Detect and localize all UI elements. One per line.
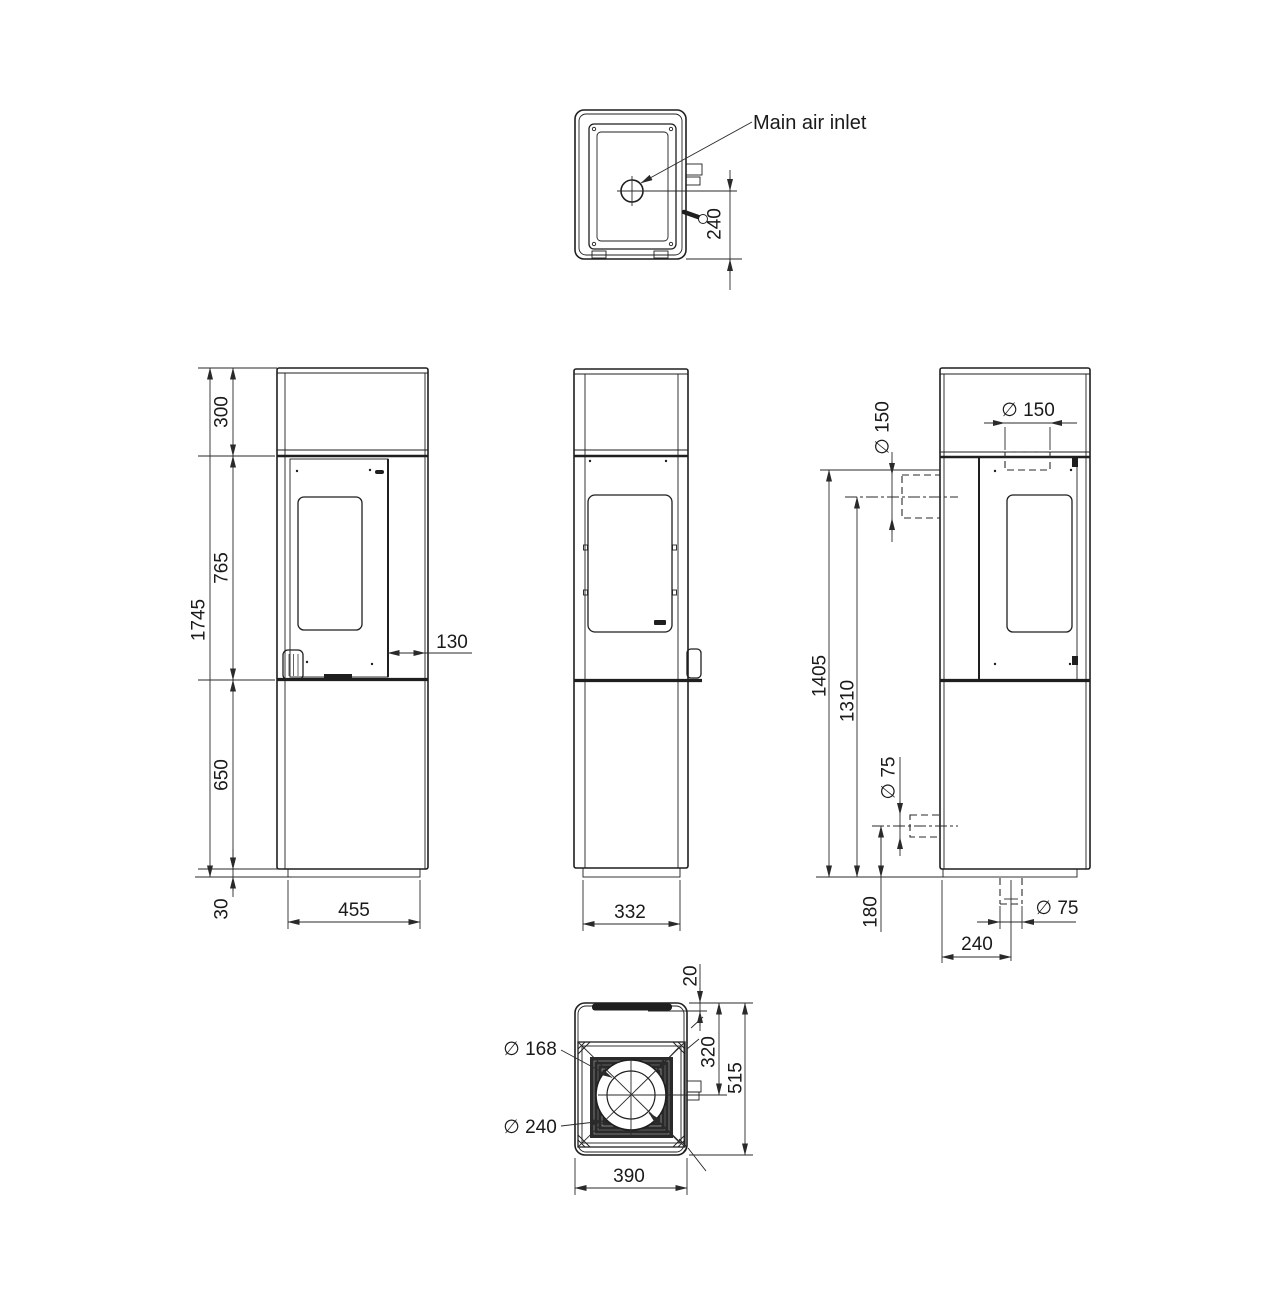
hinge-mark: [1072, 458, 1078, 467]
top-flue-outlet-dashed: [1005, 452, 1050, 470]
dim-rear-air-height: 180: [861, 826, 882, 932]
side-window: [1007, 495, 1072, 632]
dim-text-flue-150: ∅ 150: [1001, 400, 1055, 421]
dim-plinth-height: 30: [198, 849, 284, 920]
dim-bottom-air-offset: 240: [942, 880, 1011, 963]
door-handle: [687, 649, 701, 678]
dim-text-1745: 1745: [189, 599, 210, 641]
dim-text-rear-flue-150: ∅ 150: [873, 401, 894, 455]
rear-recess-slot: [592, 1004, 672, 1011]
dim-text-bottom-air-75: ∅ 75: [1036, 898, 1079, 919]
glass-clip: [584, 545, 588, 550]
foot: [592, 251, 606, 258]
dim-inlet-to-front: 240: [686, 170, 742, 290]
door-handle: [283, 650, 303, 680]
dim-top-section: 300: [212, 368, 233, 456]
view-side: 332: [574, 369, 702, 931]
plinth: [583, 868, 680, 877]
leader-line: [641, 122, 752, 183]
dim-text-320: 320: [699, 1036, 720, 1068]
dim-text-168: ∅ 168: [503, 1039, 557, 1060]
latch-mark: [375, 470, 384, 474]
main-air-inlet-callout: Main air inlet: [641, 112, 867, 183]
base-inner-panel: [597, 132, 668, 241]
dim-text-20: 20: [681, 965, 702, 986]
base-frame: [589, 124, 676, 249]
stove-body-outline: [574, 369, 688, 868]
glass-clip: [673, 590, 677, 595]
main-air-inlet-label: Main air inlet: [753, 112, 867, 134]
dim-text-515: 515: [726, 1062, 747, 1094]
dim-rear-flue-dia: ∅ 150: [873, 401, 894, 542]
view-plan-bottom: 240 Main air inlet: [575, 110, 867, 290]
dim-rear-air-dia: ∅ 75: [879, 757, 900, 856]
dim-text-390: 390: [613, 1166, 645, 1187]
dim-text-455: 455: [338, 900, 370, 921]
view-front: 1745 300 765 650 30 455: [189, 368, 472, 929]
rear-flue-outlet-dashed: [902, 475, 940, 518]
dim-text-765: 765: [212, 552, 233, 584]
dim-base-width: 455: [288, 880, 420, 929]
dim-text-180: 180: [861, 896, 882, 928]
plinth: [288, 869, 420, 877]
dim-flue-center-from-rear: 320: [699, 1003, 720, 1095]
glass-clip: [584, 590, 588, 595]
dim-text-30: 30: [212, 898, 233, 919]
dim-top-flue-height: 1405: [810, 470, 831, 877]
plinth: [943, 869, 1077, 877]
glass-clip: [673, 545, 677, 550]
rear-bracket: [686, 177, 700, 185]
dim-text-1310: 1310: [838, 680, 859, 722]
side-window: [588, 495, 672, 632]
brand-logo-mark: [654, 620, 666, 625]
dim-rear-flue-height: 1310: [838, 497, 859, 877]
dim-base-depth: 332: [583, 880, 680, 931]
view-top-plate: 20 320 515 390 ∅ 168 ∅ 240: [503, 964, 753, 1195]
door-window: [298, 497, 362, 630]
dim-text-240: 240: [705, 208, 726, 240]
dim-text-240-collar: ∅ 240: [503, 1117, 557, 1138]
dim-text-332: 332: [614, 902, 646, 923]
door-handle-stub: [687, 1081, 701, 1092]
fire-door: [290, 459, 388, 677]
dim-text-300: 300: [212, 396, 233, 428]
dim-overall-depth: 515: [689, 1003, 753, 1155]
dim-side-clearance: 130: [388, 632, 472, 653]
dim-text-rear-air-75: ∅ 75: [879, 757, 900, 800]
technical-drawing-canvas: 240 Main air inlet 1745: [0, 0, 1280, 1300]
foot: [654, 251, 668, 258]
dim-bottom-air-dia: ∅ 75: [977, 898, 1078, 929]
door-handle-stub: [687, 1092, 699, 1100]
view-rear: ∅ 150 ∅ 150 1405 1310 ∅ 75: [810, 368, 1090, 963]
dim-top-flue-dia: ∅ 150: [984, 400, 1077, 450]
dim-text-1405: 1405: [810, 655, 831, 697]
dim-text-130: 130: [436, 632, 468, 653]
hinge-mark: [1072, 656, 1078, 665]
stove-body-outline: [277, 368, 428, 869]
rear-bracket: [686, 164, 702, 175]
dim-text-650: 650: [212, 759, 233, 791]
body-inner-line: [579, 114, 682, 255]
dim-text-240: 240: [961, 934, 993, 955]
stove-body-outline: [940, 368, 1090, 869]
dim-overall-width: 390: [575, 1158, 687, 1195]
